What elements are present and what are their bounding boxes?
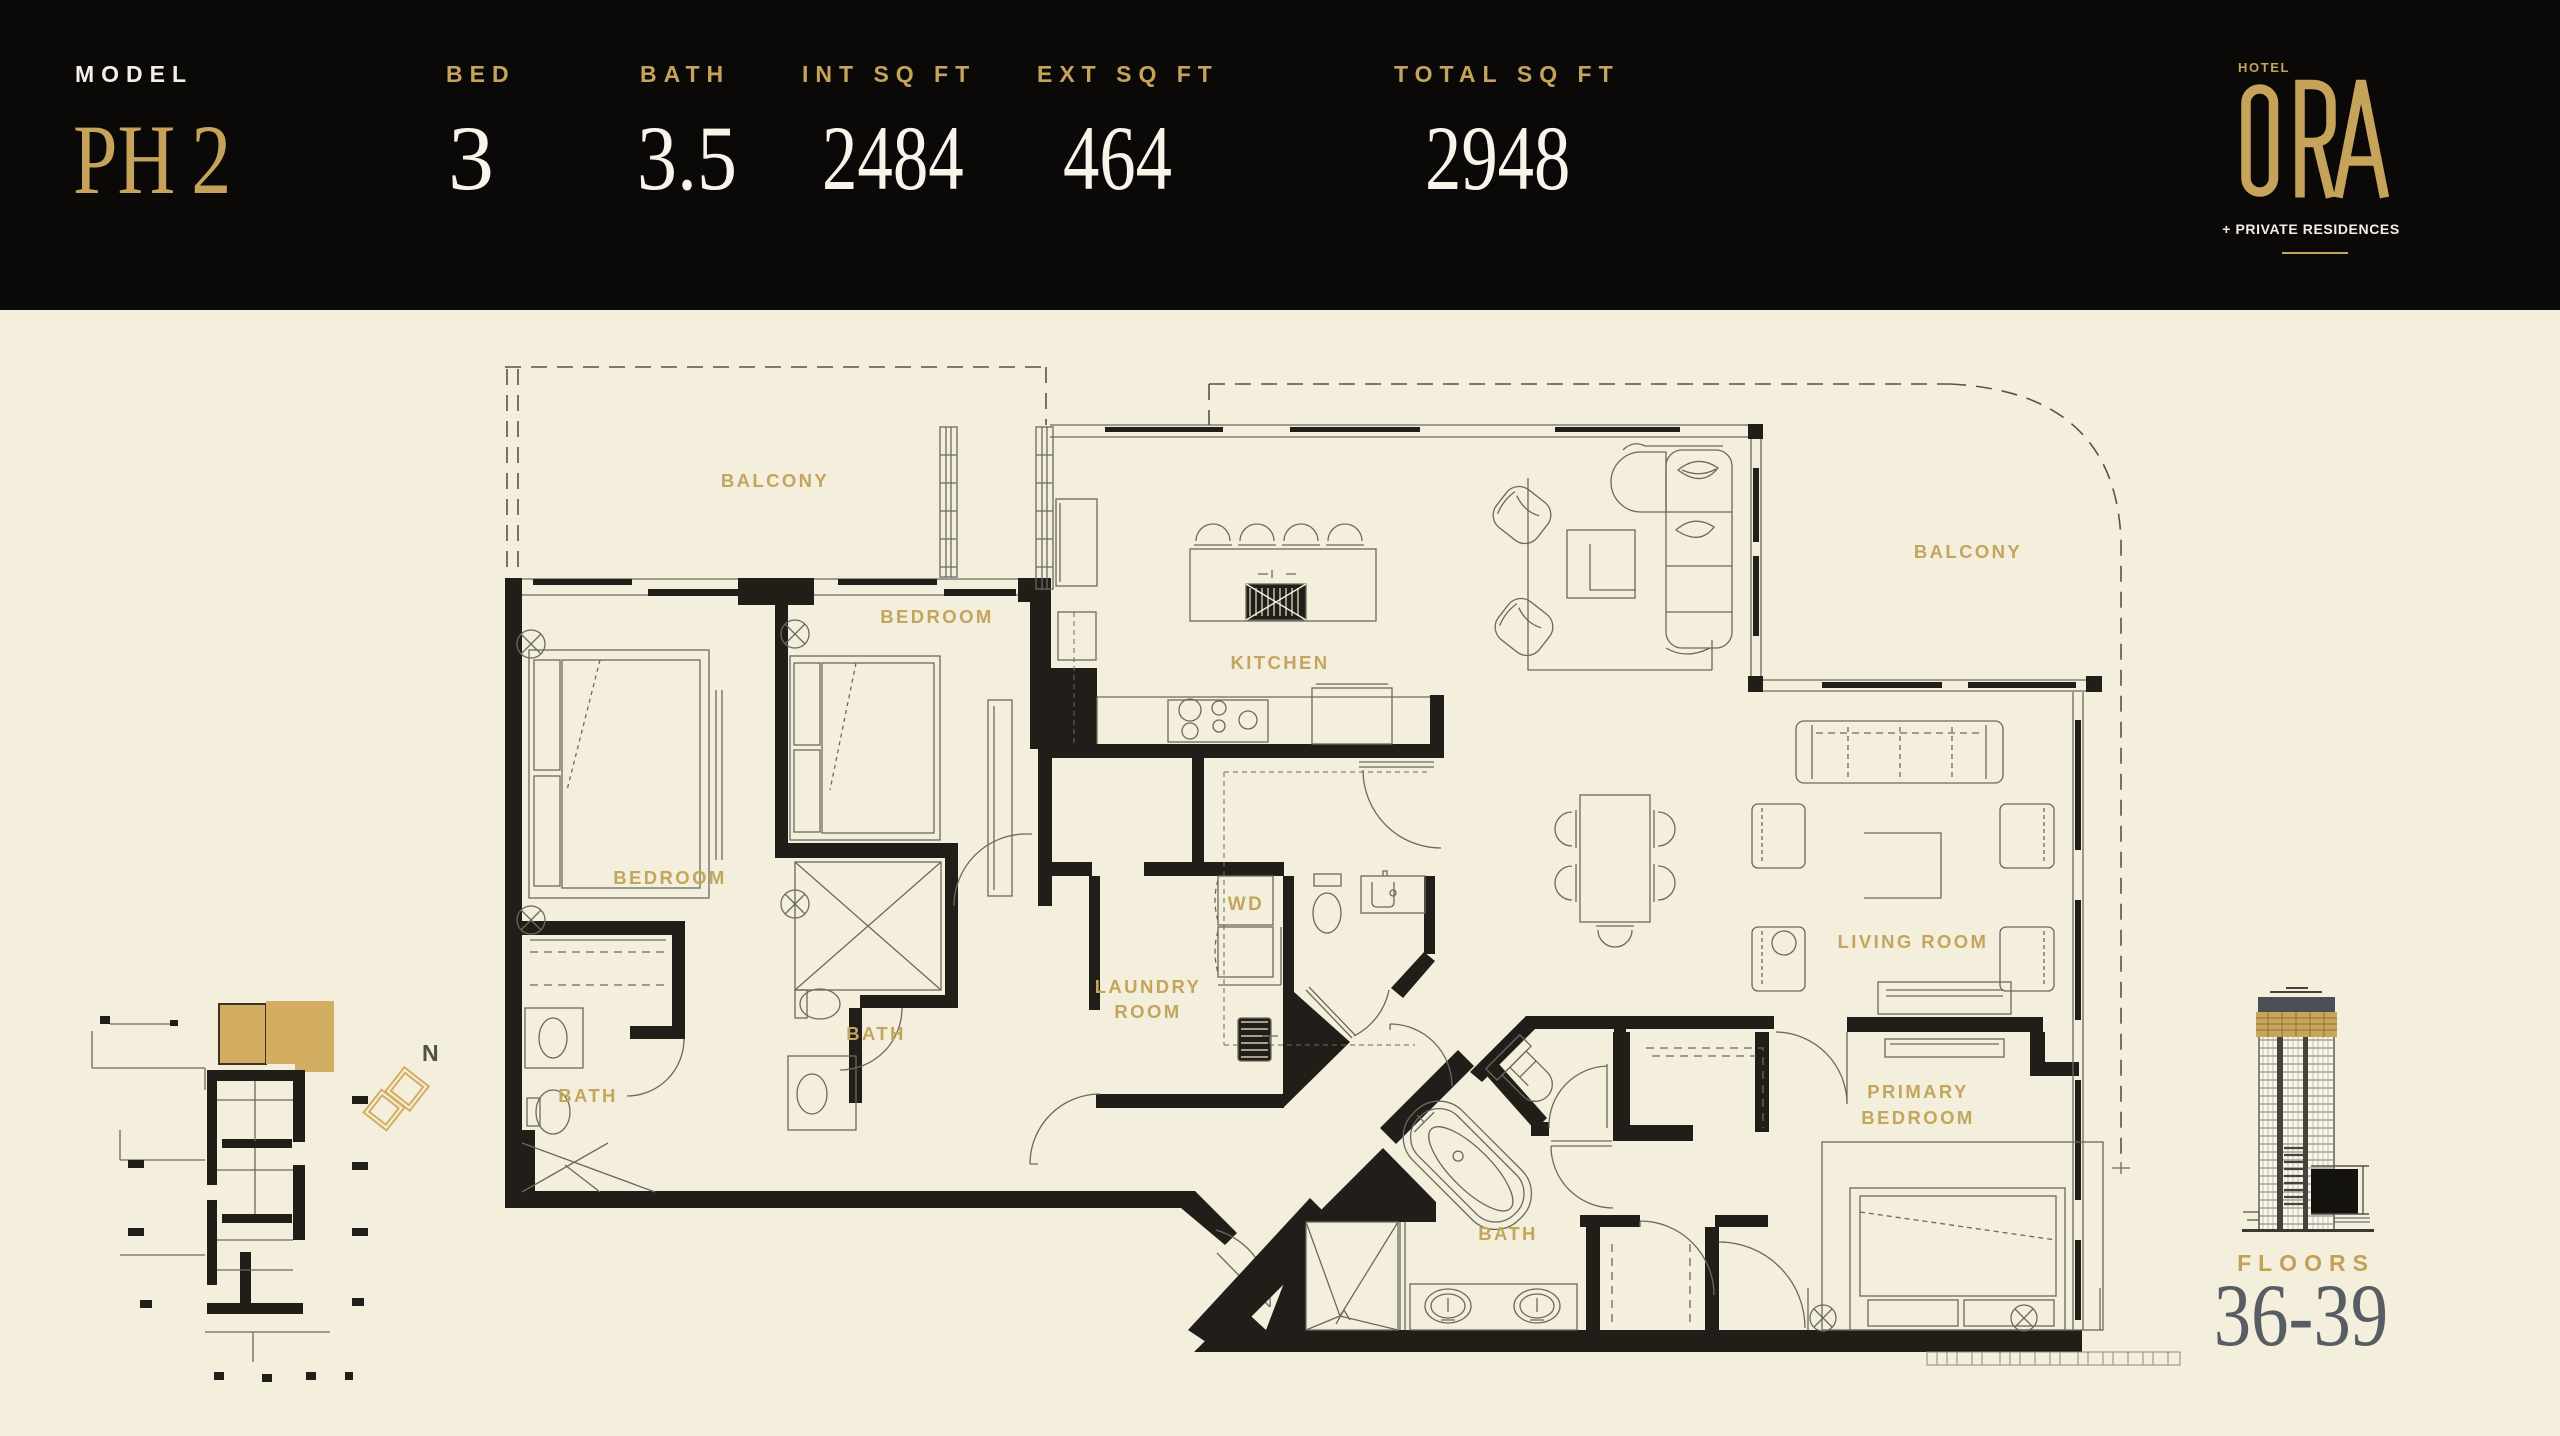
svg-text:WD: WD	[1228, 894, 1264, 915]
svg-text:36-39: 36-39	[2214, 1266, 2388, 1365]
svg-text:ROOM: ROOM	[1114, 1001, 1181, 1022]
svg-text:BATH: BATH	[558, 1085, 618, 1106]
svg-text:LAUNDRY: LAUNDRY	[1095, 976, 1202, 997]
svg-text:BATH: BATH	[846, 1023, 906, 1044]
svg-text:N: N	[422, 1040, 439, 1066]
svg-text:LIVING ROOM: LIVING ROOM	[1838, 931, 1989, 952]
svg-text:BALCONY: BALCONY	[721, 470, 829, 491]
svg-text:BATH: BATH	[1478, 1223, 1538, 1244]
svg-text:BEDROOM: BEDROOM	[880, 606, 993, 627]
svg-text:PRIMARY: PRIMARY	[1867, 1081, 1968, 1102]
svg-text:BEDROOM: BEDROOM	[1861, 1107, 1974, 1128]
svg-text:KITCHEN: KITCHEN	[1230, 652, 1329, 673]
svg-text:BALCONY: BALCONY	[1914, 541, 2022, 562]
svg-text:BEDROOM: BEDROOM	[613, 867, 726, 888]
